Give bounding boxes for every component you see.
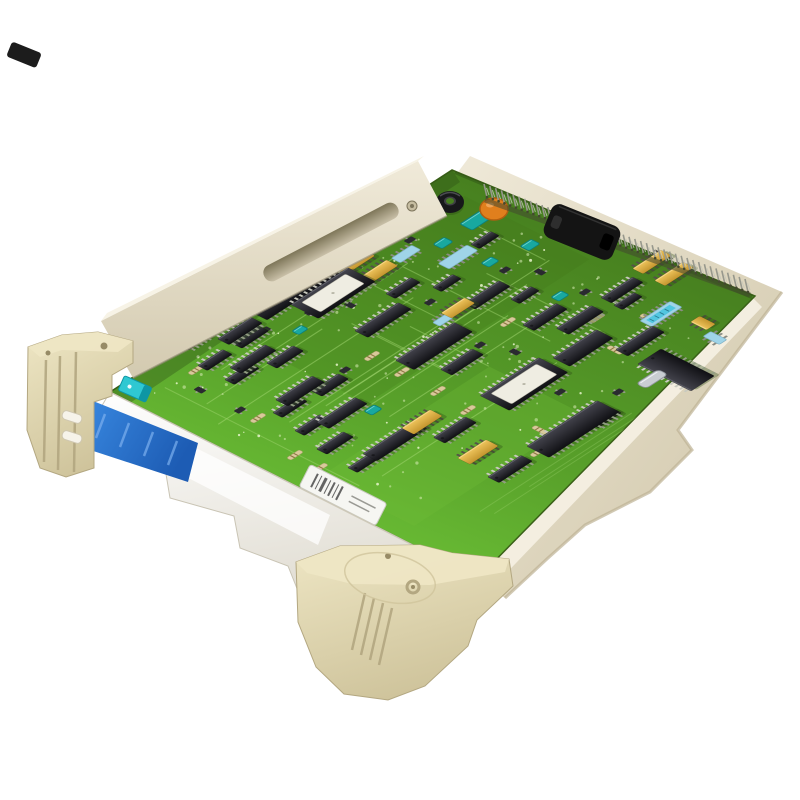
photo-canvas xyxy=(0,0,800,800)
extractor-clip-bottom xyxy=(296,545,513,700)
pcb-module-photo xyxy=(0,0,800,800)
